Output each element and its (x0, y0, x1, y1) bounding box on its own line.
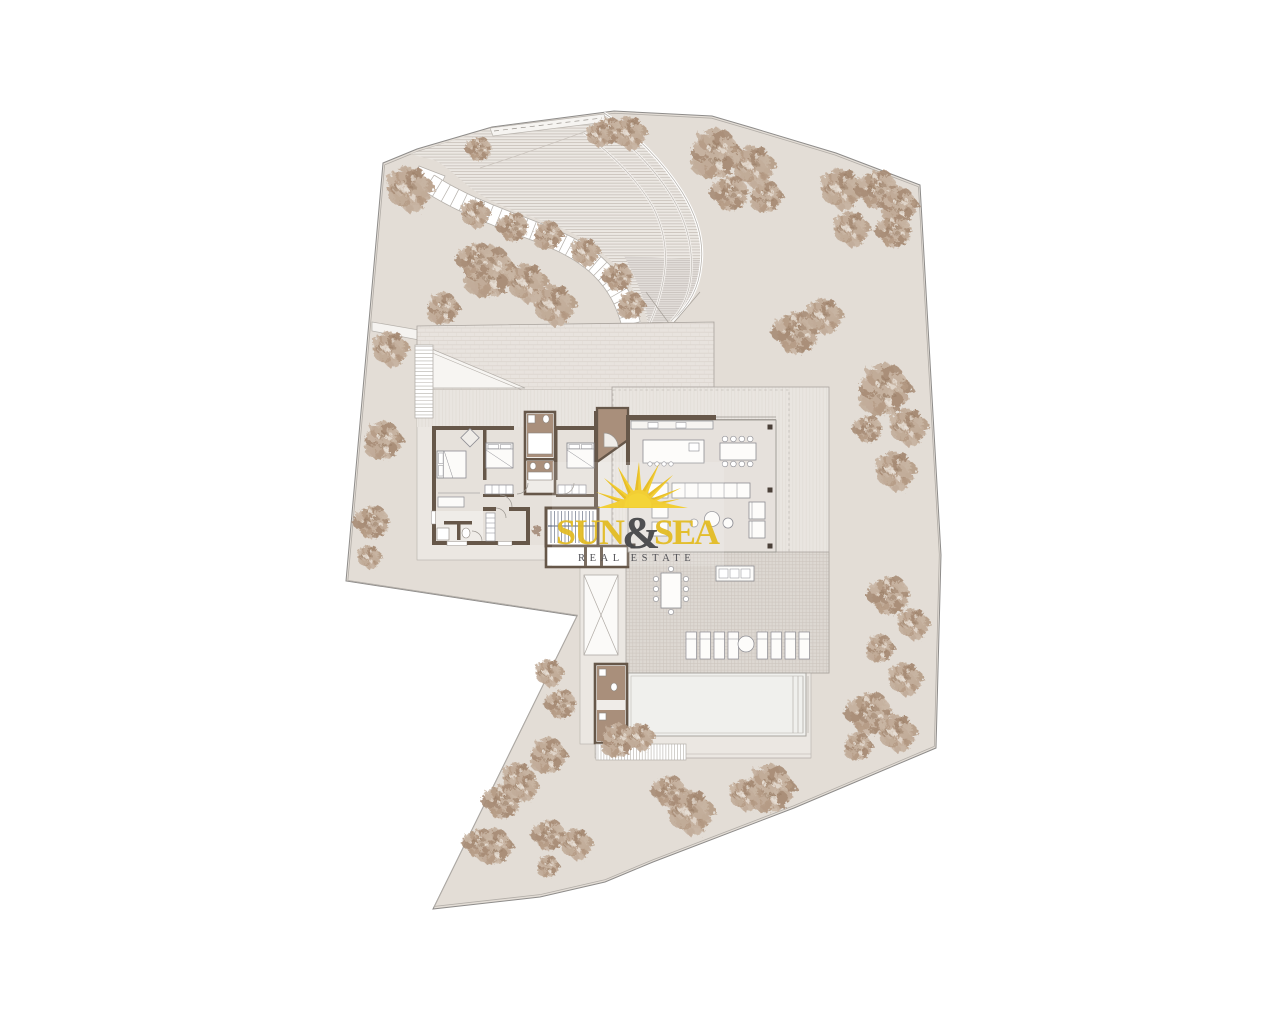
svg-text:REAL ESTATE: REAL ESTATE (578, 553, 695, 564)
svg-text:SUN: SUN (556, 512, 625, 552)
svg-text:SEA: SEA (654, 512, 720, 552)
